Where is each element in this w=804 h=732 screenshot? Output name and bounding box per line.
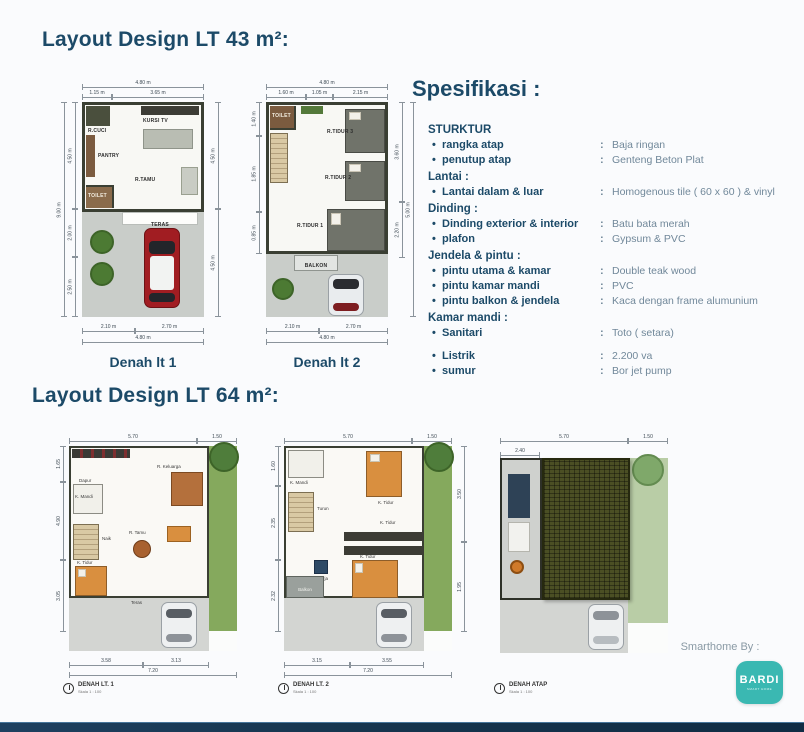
spec-group-struktur: STURKTUR • rangka atap : Baja ringan • p… — [428, 122, 798, 168]
plant-pot — [510, 560, 524, 574]
spec-value: Bor jet pump — [612, 364, 798, 379]
spec-colon: : — [600, 153, 612, 168]
spec-row: • Sanitari : Toto ( setara) — [428, 326, 798, 341]
white-car — [588, 604, 624, 650]
dim-top-a: 1.60 m — [266, 90, 306, 98]
spec-value: PVC — [612, 279, 798, 294]
bush-icon — [272, 278, 294, 300]
dim-bottom-a: 3.58 — [69, 658, 143, 666]
room-label-kursi-tv: KURSI TV — [143, 118, 168, 124]
bullet-icon: • — [428, 185, 442, 200]
tree-icon — [424, 442, 454, 472]
spec-value: Baja ringan — [612, 138, 798, 153]
bullet-icon: • — [428, 279, 442, 294]
stairs — [270, 133, 288, 183]
dim-bottom-b: 3.13 — [143, 658, 209, 666]
planter — [301, 106, 323, 114]
spec-value: Batu bata merah — [612, 217, 798, 232]
north-compass-icon — [278, 683, 289, 694]
bardi-logo-subtext: SMART HOME — [747, 687, 772, 691]
plan-caption: DENAH LT. 2 — [293, 682, 329, 689]
room-label-mandi: K. Mandi — [75, 494, 93, 499]
spec-colon: : — [600, 326, 612, 341]
floorplan-64-lt2: 5.70 1.50 1.60 2.35 2.32 3.50 1.95 K. Ma… — [260, 428, 470, 708]
bullet-icon: • — [428, 364, 442, 379]
floorplan-64-atap: 5.70 1.50 2.40 DENAH ATAP Skala 1 : 100 — [476, 428, 686, 708]
dim-left-b: 1.85 m — [251, 136, 260, 212]
dim-right-b: 1.95 — [456, 542, 465, 632]
dim-bottom-total: 7.20 — [284, 668, 452, 676]
bed — [345, 161, 385, 201]
plan-scale: Skala 1 : 100 — [293, 689, 329, 694]
dim-left-c: 0.85 m — [251, 212, 260, 254]
tree-icon — [209, 442, 239, 472]
grass-strip — [209, 446, 237, 631]
room-label-tidur-b: K. Tidur — [380, 520, 396, 525]
skylight-panel — [508, 522, 530, 552]
plan-canvas: TOILET R.TIDUR 3 R.TIDUR 2 R.TIDUR 1 BAL… — [266, 102, 388, 317]
bathroom — [73, 484, 103, 514]
roofdeck-concrete — [500, 458, 542, 600]
room-label-dapur: Dapur — [79, 478, 91, 483]
dim-top-a: 5.70 — [69, 434, 197, 442]
laundry-unit — [86, 106, 110, 126]
bullet-icon: • — [428, 349, 442, 364]
dim-bottom-b: 2.70 m — [319, 324, 388, 332]
red-car — [144, 228, 180, 308]
balkon: BALKON — [294, 255, 338, 271]
spec-label: Dinding exterior & interior — [442, 217, 600, 232]
bathroom — [288, 450, 324, 478]
plan-caption-group: DENAH LT. 1 Skala 1 : 100 — [63, 682, 114, 694]
spec-value: Double teak wood — [612, 264, 798, 279]
spec-value: 2.200 va — [612, 349, 798, 364]
dim-right-b: 4.50 m — [210, 209, 219, 317]
tv-cabinet — [141, 106, 199, 115]
dim-bottom-total: 7.20 — [69, 668, 237, 676]
plan-canvas: K. Mandi K. Tidur Turun K. Tidur K. Kerj… — [284, 446, 452, 651]
dim-top-b: 1.50 — [628, 434, 668, 442]
section-43-title: Layout Design LT 43 m²: — [42, 28, 289, 52]
balkon: Balkon — [286, 576, 324, 598]
white-car — [328, 274, 364, 316]
house-outline: TOILET R.TIDUR 3 R.TIDUR 2 R.TIDUR 1 — [266, 102, 388, 254]
spec-label: pintu utama & kamar — [442, 264, 600, 279]
dim-right-a: 3.50 — [456, 446, 465, 542]
dim-bottom-b: 2.70 m — [135, 324, 204, 332]
bullet-icon: • — [428, 232, 442, 247]
spec-group-kamar-mandi: Kamar mandi : • Sanitari : Toto ( setara… — [428, 310, 798, 341]
room-label-tidur2: R.TIDUR 2 — [325, 175, 351, 181]
dim-bottom-b: 3.55 — [350, 658, 424, 666]
dim-bottom-a: 2.10 m — [82, 324, 135, 332]
teras-band: TERAS — [122, 212, 198, 225]
room-label-tamu: R. Tamu — [129, 530, 146, 535]
stairs — [288, 492, 314, 532]
spec-row: • plafon : Gypsum & PVC — [428, 232, 798, 247]
bullet-icon: • — [428, 294, 442, 309]
room-label-tidur-c: K. Tidur — [360, 554, 376, 559]
spec-row: • penutup atap : Genteng Beton Plat — [428, 153, 798, 168]
room-label-pantry: PANTRY — [98, 153, 119, 159]
round-table — [133, 540, 151, 558]
bullet-icon: • — [428, 138, 442, 153]
flyer-page: Layout Design LT 43 m²: 4.80 m 1.15 m 3.… — [0, 0, 804, 732]
bullet-icon: • — [428, 153, 442, 168]
plan-caption: DENAH LT. 1 — [78, 682, 114, 689]
spec-colon: : — [600, 217, 612, 232]
spec-heading: Dinding : — [428, 201, 798, 217]
dim-top-b: 1.05 m — [306, 90, 333, 98]
room-label-balkon: Balkon — [298, 587, 312, 592]
plan-caption: Denah lt 1 — [58, 354, 228, 370]
plan-caption-group: DENAH LT. 2 Skala 1 : 100 — [278, 682, 329, 694]
spec-label: pintu kamar mandi — [442, 279, 600, 294]
sofa — [143, 129, 193, 149]
spec-value: Gypsum & PVC — [612, 232, 798, 247]
spec-colon: : — [600, 138, 612, 153]
spec-colon: : — [600, 279, 612, 294]
bed — [327, 209, 385, 251]
spec-colon: : — [600, 364, 612, 379]
spec-label: Sanitari — [442, 326, 600, 341]
spec-label: Lantai dalam & luar — [442, 185, 600, 200]
floorplan-43-lt1: 4.80 m 1.15 m 3.65 m 9.00 m 4.50 m 2.00 … — [58, 72, 228, 377]
spec-value: Toto ( setara) — [612, 326, 798, 341]
wardrobe — [344, 546, 424, 555]
dim-right-b: 2.20 m — [394, 202, 403, 258]
tree-icon — [632, 454, 664, 486]
room-label-tidur: K. Tidur — [77, 560, 93, 565]
spec-value: Homogenous tile ( 60 x 60 ) & vinyl — [612, 185, 798, 200]
bed — [352, 560, 398, 598]
plan-canvas: Dapur R. Keluarga K. Mandi Naik R. Tamu … — [69, 446, 237, 651]
spec-row: • pintu kamar mandi : PVC — [428, 279, 798, 294]
spec-heading: Jendela & pintu : — [428, 248, 798, 264]
plan-scale: Skala 1 : 100 — [78, 689, 114, 694]
plan-caption: Denah lt 2 — [242, 354, 412, 370]
dim-left-a: 2.40 — [500, 448, 540, 456]
room-label-mandi: K. Mandi — [290, 480, 308, 485]
spec-heading: Kamar mandi : — [428, 310, 798, 326]
dim-left-a: 1.60 — [270, 446, 279, 486]
dim-left-b: 4.90 — [55, 482, 64, 560]
dim-top-b: 3.65 m — [112, 90, 204, 98]
dim-top-b: 1.50 — [197, 434, 237, 442]
dim-top-c: 2.15 m — [333, 90, 388, 98]
plan-canvas: R.CUCI KURSI TV PANTRY R.TAMU TOILET TER… — [82, 102, 204, 317]
wardrobe — [344, 532, 424, 541]
dim-left-c: 2.50 m — [67, 257, 76, 317]
dim-bottom-total: 4.80 m — [82, 335, 204, 343]
floorplan-64-lt1: 5.70 1.50 1.65 4.90 3.05 Dapur R. Keluar… — [45, 428, 255, 708]
bush-icon — [90, 262, 114, 286]
spec-colon: : — [600, 349, 612, 364]
dim-left-c: 2.32 — [270, 560, 279, 632]
room-label-keluarga: R. Keluarga — [157, 464, 181, 469]
spec-colon: : — [600, 294, 612, 309]
pantry-counter — [86, 135, 95, 177]
room-label-toilet: TOILET — [88, 193, 107, 199]
spec-group-jendela-pintu: Jendela & pintu : • pintu utama & kamar … — [428, 248, 798, 309]
spec-row: • pintu balkon & jendela : Kaca dengan f… — [428, 294, 798, 309]
bed — [75, 566, 107, 596]
white-car — [161, 602, 197, 648]
spec-colon: : — [600, 264, 612, 279]
plan-scale: Skala 1 : 100 — [509, 689, 547, 694]
stairs-label-naik: Naik — [102, 536, 111, 541]
dim-top-a: 1.15 m — [82, 90, 112, 98]
spec-label: Listrik — [442, 349, 600, 364]
armchair — [167, 526, 191, 542]
dim-left-c: 3.05 — [55, 560, 64, 632]
dim-top-total: 4.80 m — [266, 80, 388, 88]
spec-list: STURKTUR • rangka atap : Baja ringan • p… — [428, 122, 798, 380]
sofa — [171, 472, 203, 506]
armchair — [181, 167, 198, 195]
spec-row: • Dinding exterior & interior : Batu bat… — [428, 217, 798, 232]
dim-top-b: 1.50 — [412, 434, 452, 442]
solar-panel — [508, 474, 530, 518]
dim-right-a: 4.50 m — [210, 102, 219, 209]
dim-bottom-a: 3.15 — [284, 658, 350, 666]
spec-value: Genteng Beton Plat — [612, 153, 798, 168]
spec-row: • pintu utama & kamar : Double teak wood — [428, 264, 798, 279]
room-label-cuci: R.CUCI — [88, 128, 106, 134]
bullet-icon: • — [428, 264, 442, 279]
dim-left-a: 1.65 — [55, 446, 64, 482]
north-compass-icon — [63, 683, 74, 694]
dim-bottom-total: 4.80 m — [266, 335, 388, 343]
plan-canvas — [500, 458, 668, 653]
dim-right-outer: 5.00 m — [405, 102, 414, 317]
dim-left-a: 4.50 m — [67, 102, 76, 209]
spec-group-utilitas: • Listrik : 2.200 va • sumur : Bor jet p… — [428, 349, 798, 379]
spec-colon: : — [600, 232, 612, 247]
spec-group-dinding: Dinding : • Dinding exterior & interior … — [428, 201, 798, 247]
bardi-logo-text: BARDI — [740, 674, 780, 686]
spec-colon: : — [600, 185, 612, 200]
floorplan-43-lt2: 4.80 m 1.60 m 1.05 m 2.15 m 1.40 m 1.85 … — [242, 72, 412, 377]
spec-label: rangka atap — [442, 138, 600, 153]
room-label-tidur1: R.TIDUR 1 — [297, 223, 323, 229]
dim-right-a: 3.60 m — [394, 102, 403, 202]
spec-row: • sumur : Bor jet pump — [428, 364, 798, 379]
spec-row: • Lantai dalam & luar : Homogenous tile … — [428, 185, 798, 200]
grass-strip — [424, 446, 452, 631]
white-car — [376, 602, 412, 648]
section-64-title: Layout Design LT 64 m²: — [32, 384, 279, 408]
room-label-balkon: BALKON — [305, 263, 328, 269]
dim-left-outer: 9.00 m — [56, 102, 65, 317]
spec-label: pintu balkon & jendela — [442, 294, 600, 309]
smarthome-by-label: Smarthome By : — [660, 641, 780, 653]
north-compass-icon — [494, 683, 505, 694]
room-label-tidur3: R.TIDUR 3 — [327, 129, 353, 135]
bullet-icon: • — [428, 217, 442, 232]
dim-left-b: 2.35 — [270, 486, 279, 560]
dim-top-a: 5.70 — [500, 434, 628, 442]
bullet-icon: • — [428, 326, 442, 341]
house-outline: R.CUCI KURSI TV PANTRY R.TAMU TOILET — [82, 102, 204, 212]
spec-row: • Listrik : 2.200 va — [428, 349, 798, 364]
dim-top-a: 5.70 — [284, 434, 412, 442]
footer-bar — [0, 722, 804, 732]
spec-heading: Lantai : — [428, 169, 798, 185]
plan-caption: DENAH ATAP — [509, 682, 547, 689]
tiled-roof — [542, 458, 630, 600]
spec-row: • rangka atap : Baja ringan — [428, 138, 798, 153]
bed — [366, 451, 402, 497]
dim-bottom-a: 2.10 m — [266, 324, 319, 332]
house-outline: Dapur R. Keluarga K. Mandi Naik R. Tamu … — [69, 446, 209, 598]
spec-value: Kaca dengan frame alumunium — [612, 294, 798, 309]
room-label-tidur-a: K. Tidur — [378, 500, 394, 505]
spec-group-lantai: Lantai : • Lantai dalam & luar : Homogen… — [428, 169, 798, 200]
room-label-tamu: R.TAMU — [135, 177, 155, 183]
spec-label: penutup atap — [442, 153, 600, 168]
spec-title: Spesifikasi : — [412, 76, 540, 102]
spec-heading: STURKTUR — [428, 122, 798, 138]
stairs-label-turun: Turun — [317, 506, 329, 511]
spec-label: sumur — [442, 364, 600, 379]
bardi-logo: BARDI SMART HOME — [736, 661, 783, 704]
bush-icon — [90, 230, 114, 254]
desk-chair — [314, 560, 328, 574]
room-label-teras: Teras — [131, 600, 142, 605]
dim-left-b: 2.00 m — [67, 209, 76, 257]
dim-top-total: 4.80 m — [82, 80, 204, 88]
spec-label: plafon — [442, 232, 600, 247]
stairs — [73, 524, 99, 560]
plan-caption-group: DENAH ATAP Skala 1 : 100 — [494, 682, 547, 694]
dim-left-a: 1.40 m — [251, 102, 260, 136]
kitchen-counter — [72, 449, 130, 458]
room-label-toilet: TOILET — [272, 113, 291, 119]
